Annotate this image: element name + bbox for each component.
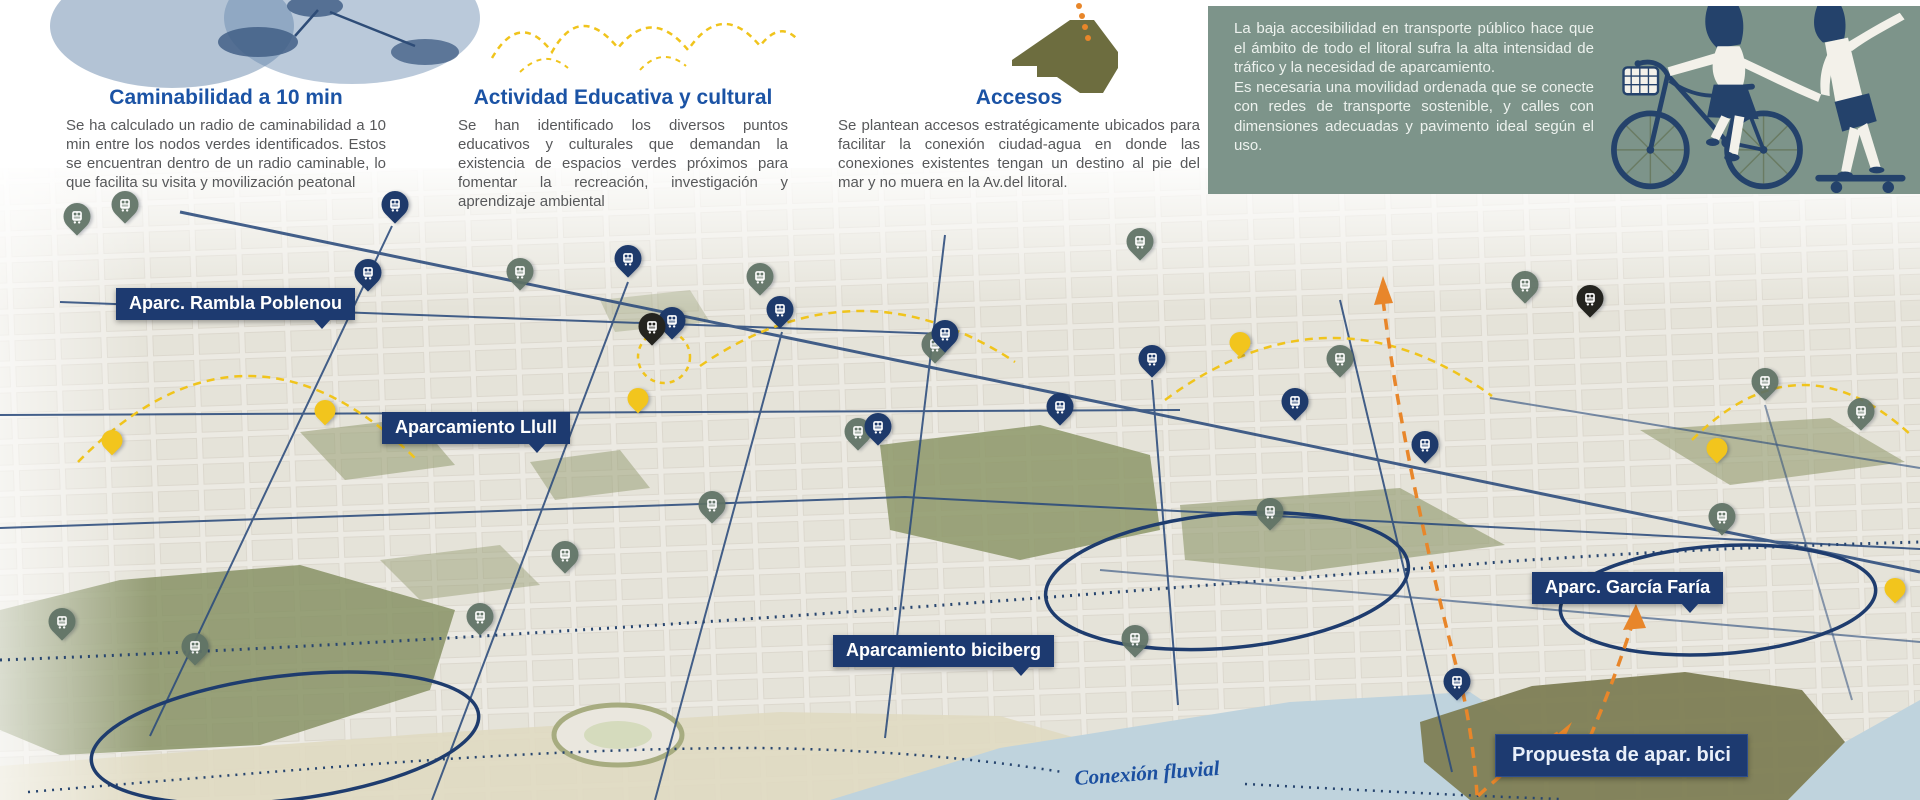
access-pier-graphic xyxy=(1012,3,1118,93)
education-title: Actividad Educativa y cultural xyxy=(458,86,788,110)
education-body: Se han identificado los diversos puntos … xyxy=(458,116,788,211)
education-arcs-graphic xyxy=(492,24,798,72)
access-body: Se plantean accesos estratégicamente ubi… xyxy=(838,116,1200,192)
walkability-title: Caminabilidad a 10 min xyxy=(66,86,386,110)
mobility-paragraph-2: Es necesaria una movilidad ordenada que … xyxy=(1234,78,1594,156)
mobility-note-box: La baja accesibilidad en transporte públ… xyxy=(1208,6,1920,194)
section-walkability: Caminabilidad a 10 min Se ha calculado u… xyxy=(66,86,386,192)
mobility-note-text: La baja accesibilidad en transporte públ… xyxy=(1234,19,1594,156)
walkability-venn-graphic xyxy=(50,0,480,88)
map-base xyxy=(0,168,1920,800)
cyclists-illustration xyxy=(1588,6,1918,194)
section-education: Actividad Educativa y cultural Se han id… xyxy=(458,86,788,211)
section-access: Accesos Se plantean accesos estratégicam… xyxy=(838,86,1200,192)
poster: Conexión fluvial Caminabilidad a 10 min … xyxy=(0,0,1920,800)
access-title: Accesos xyxy=(838,86,1200,110)
walkability-body: Se ha calculado un radio de caminabilida… xyxy=(66,116,386,192)
mobility-paragraph-1: La baja accesibilidad en transporte públ… xyxy=(1234,19,1594,78)
